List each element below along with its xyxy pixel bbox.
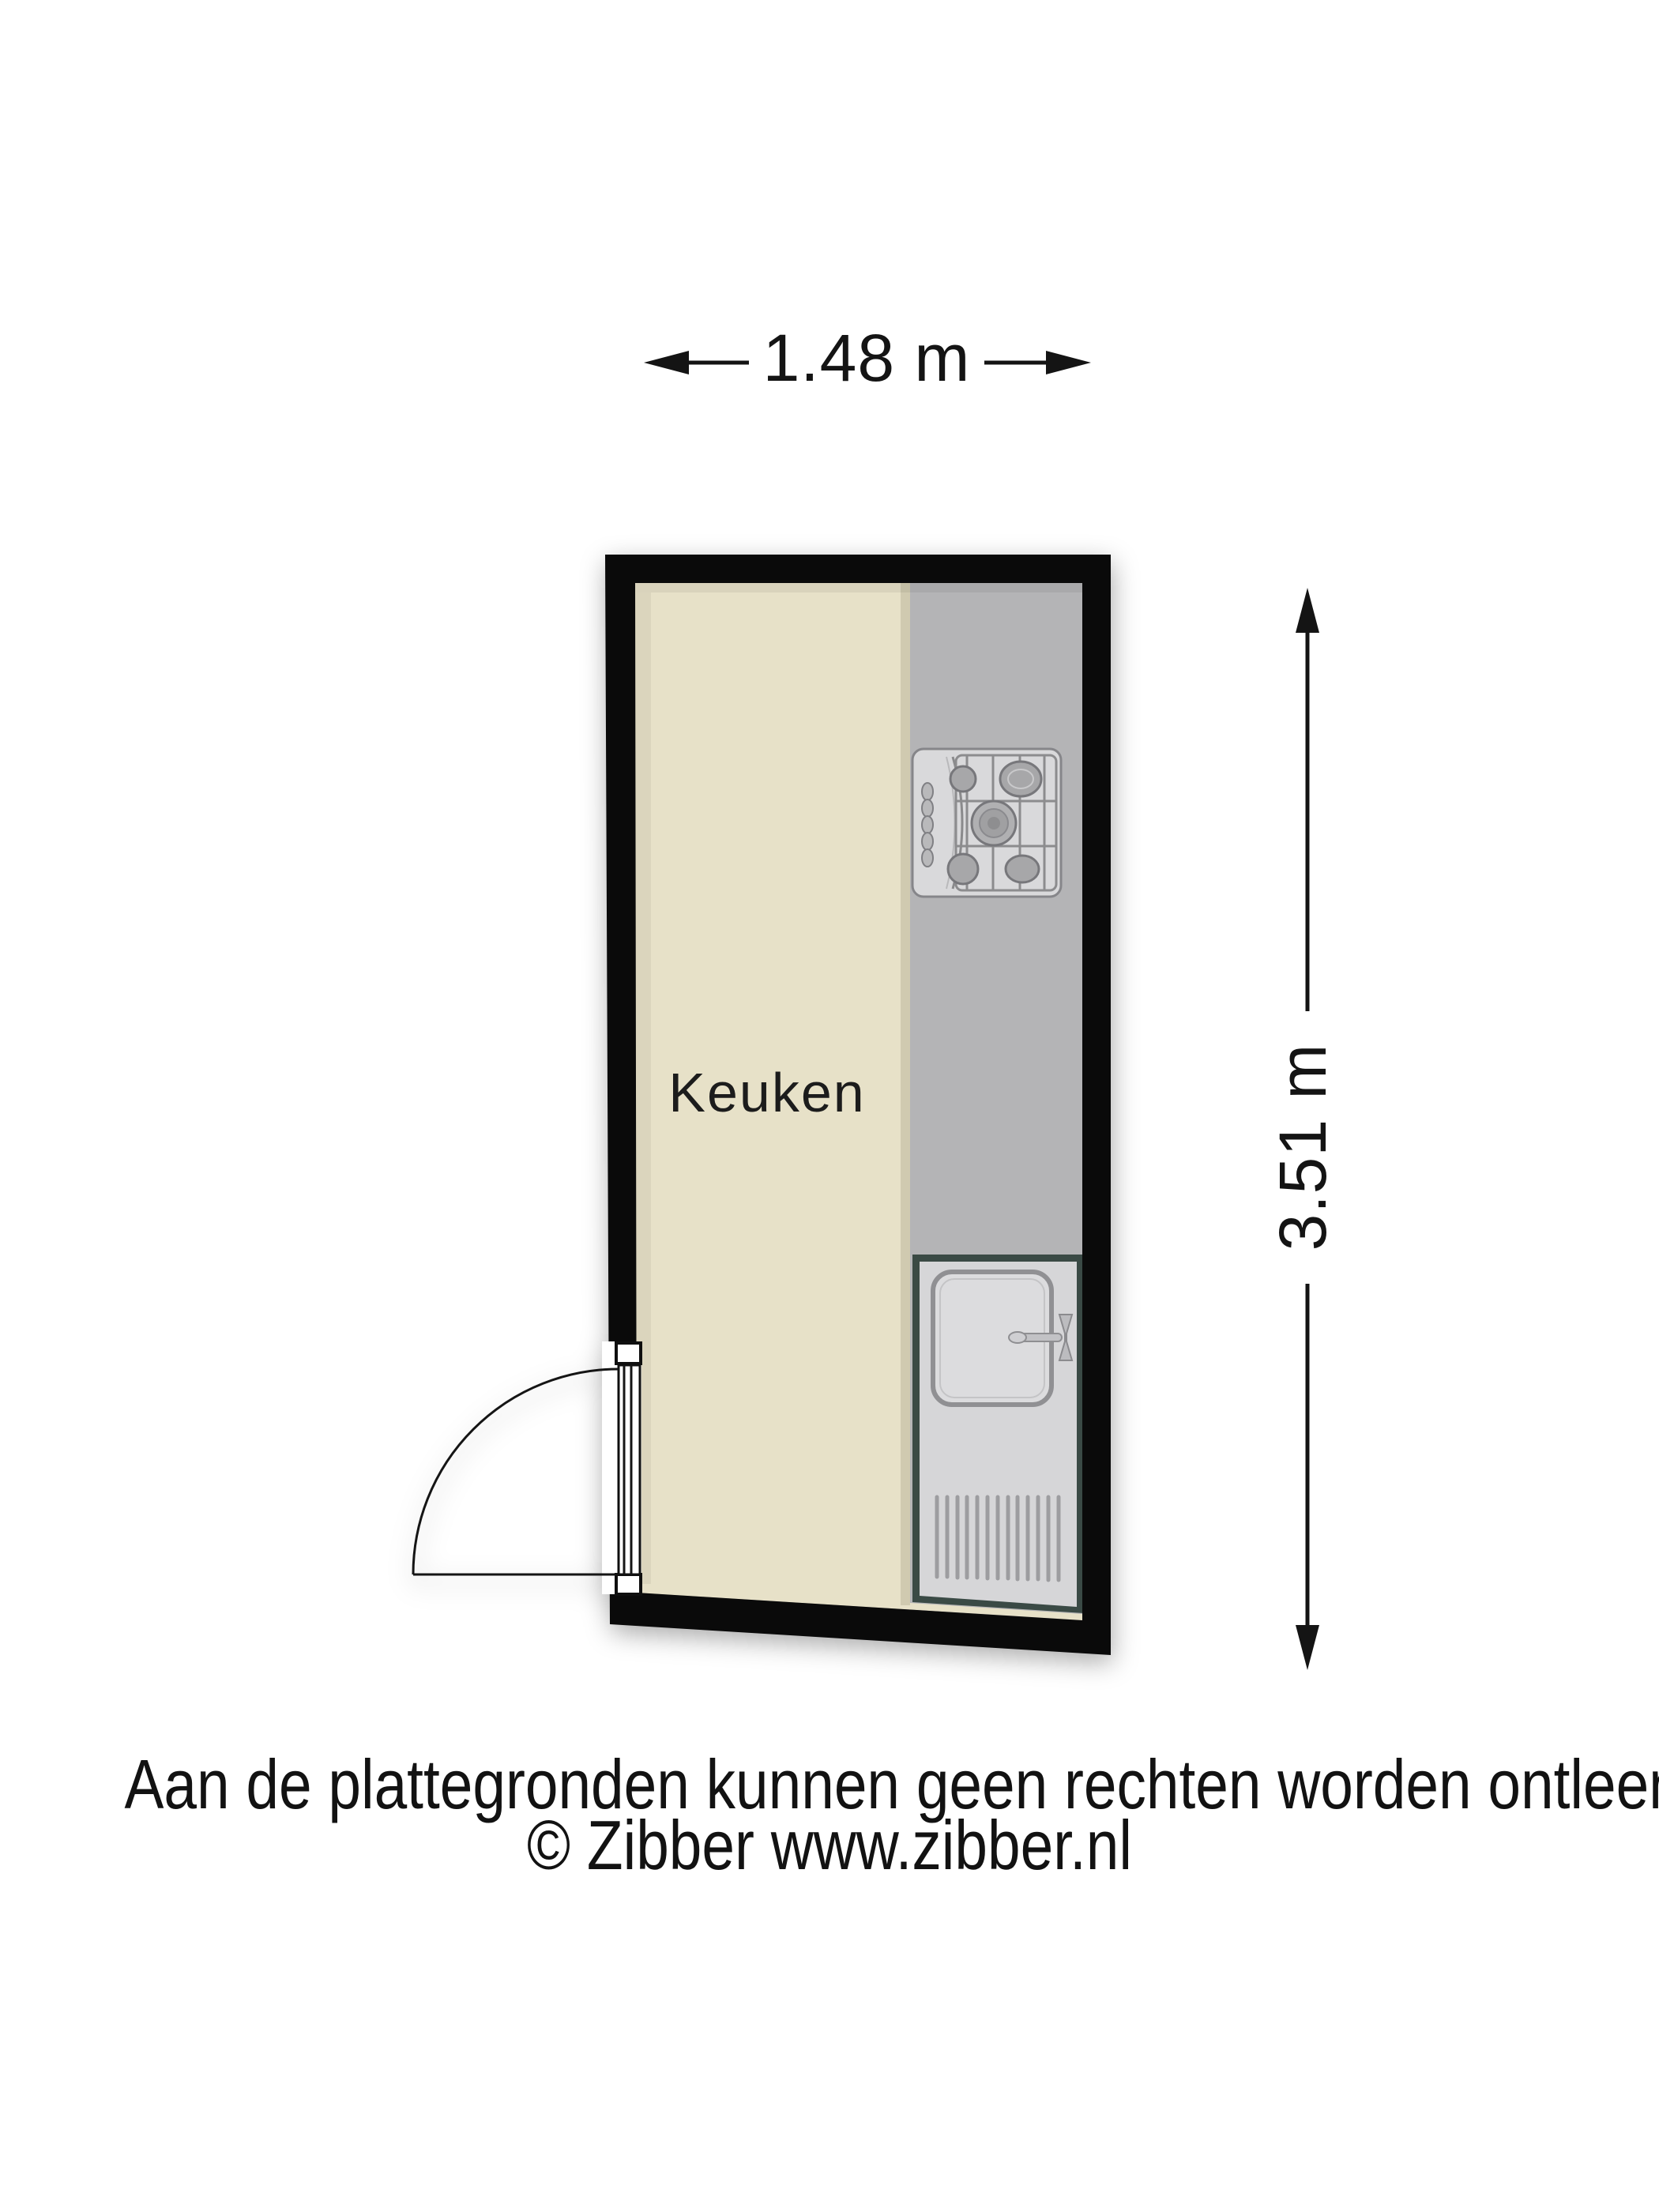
door-swing-icon [413,1341,641,1594]
floor-edge-shadow [901,583,910,1605]
arrow-right-icon [1046,351,1091,374]
width-dimension: 1.48 m [644,321,1091,395]
arrow-left-icon [644,351,689,374]
room-label: Keuken [668,1062,865,1123]
gas-hob-icon [912,749,1061,897]
height-dimension: 3.51 m [1266,588,1340,1670]
width-dimension-label: 1.48 m [763,321,971,395]
door-leaf [619,1365,640,1574]
copyright-text: © Zibber www.zibber.nl [125,1811,1535,1880]
door-frame-top [616,1343,641,1364]
height-dimension-label: 3.51 m [1266,1044,1340,1251]
door-frame-bottom [616,1574,641,1594]
sink-icon [912,1255,1084,1613]
arrow-up-icon [1296,588,1319,633]
door-arc [413,1369,619,1574]
floor-top-shadow [635,583,1082,592]
arrow-down-icon [1296,1625,1319,1670]
